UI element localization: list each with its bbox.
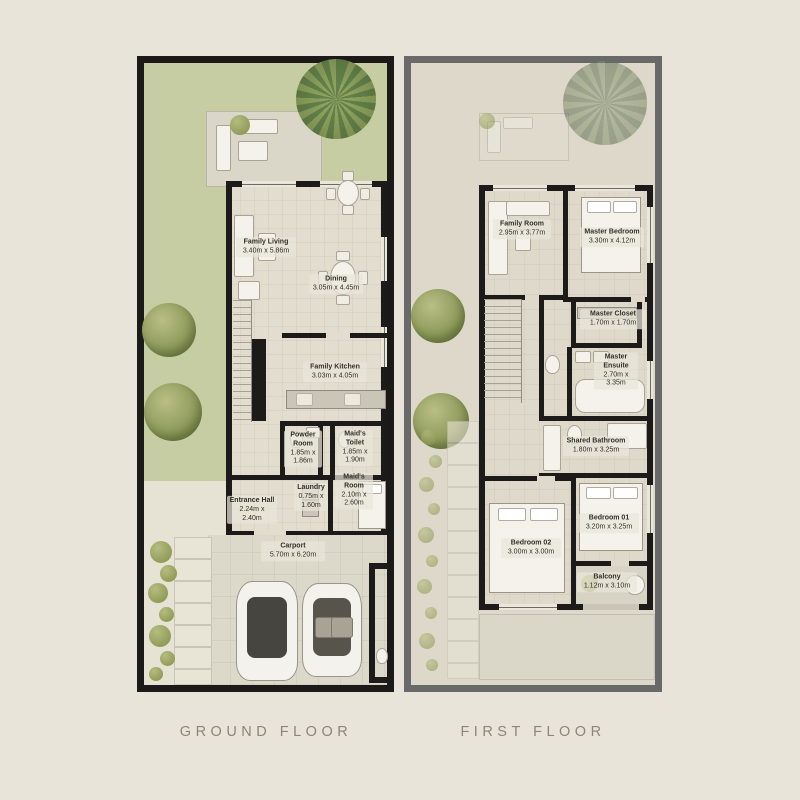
wall	[571, 302, 576, 347]
staircase	[233, 300, 252, 422]
room-dims: 3.00m x 3.00m	[503, 548, 559, 557]
room-dims: 3.20m x 3.25m	[581, 523, 637, 532]
room-name: Carport	[263, 542, 323, 551]
room-label-bedroom-01: Bedroom 01 3.20m x 3.25m	[579, 513, 639, 533]
shrub-icon	[429, 455, 442, 468]
car-seat	[331, 617, 353, 637]
first-floor-caption: FIRST FLOOR	[460, 724, 605, 740]
toilet-icon	[545, 355, 560, 374]
room-name: Master Closet	[582, 310, 644, 319]
shrub-icon	[150, 541, 172, 563]
wall	[330, 421, 335, 480]
shrub-icon	[159, 607, 174, 622]
room-name: Powder Room	[286, 432, 320, 450]
room-label-balcony: Balcony 1.12m x 3.10m	[577, 572, 637, 592]
shrub-icon	[417, 579, 432, 594]
room-label-shared-bathroom: Shared Bathroom 1.80m x 3.25m	[563, 436, 629, 456]
room-label-family-room: Family Room 2.95m x 3.77m	[493, 219, 551, 239]
shrub-icon	[428, 503, 440, 515]
shrub-icon	[425, 607, 437, 619]
wall	[232, 475, 282, 480]
sink-icon	[296, 393, 313, 406]
table-top	[337, 180, 359, 206]
chair-icon	[326, 188, 336, 200]
palm-tree-icon	[296, 59, 376, 139]
chair-icon	[360, 188, 370, 200]
wall	[252, 339, 266, 421]
wall	[539, 416, 653, 421]
window	[381, 237, 387, 281]
room-dims: 1.12m x 3.10m	[579, 582, 635, 591]
chair-icon	[336, 295, 350, 305]
faded-sofa-outline	[503, 117, 533, 129]
shrub-icon	[418, 527, 434, 543]
coffee-table-icon	[238, 141, 268, 161]
shrub-icon	[426, 659, 438, 671]
room-dims: 2.24m x 2.40m	[229, 506, 275, 524]
room-label-family-living: Family Living 3.40m x 5.86m	[236, 237, 296, 257]
room-dims: 2.95m x 3.77m	[495, 229, 549, 238]
room-label-bedroom-02: Bedroom 02 3.00m x 3.00m	[501, 538, 561, 558]
window	[242, 181, 296, 187]
room-dims: 1.85m x 1.90m	[339, 448, 371, 466]
room-name: Bedroom 01	[581, 514, 637, 523]
balcony-railing	[583, 604, 639, 610]
shrub-icon	[479, 113, 495, 129]
outdoor-dining-table-icon	[326, 171, 368, 213]
outdoor-sofa-icon	[216, 125, 231, 171]
pillow	[586, 487, 611, 499]
room-dims: 0.75m x 1.60m	[296, 493, 326, 511]
room-label-maids-room: Maid's Room 2.10m x 2.60m	[335, 473, 373, 510]
room-label-maids-toilet: Maid's Toilet 1.85m x 1.90m	[337, 430, 373, 467]
cooktop-icon	[344, 393, 361, 406]
window	[647, 361, 653, 399]
sofa-icon	[506, 201, 550, 216]
room-label-family-kitchen: Family Kitchen 3.03m x 4.05m	[303, 362, 367, 382]
room-label-laundry: Laundry 0.75m x 1.60m	[294, 483, 328, 511]
window	[575, 185, 635, 191]
window	[493, 185, 547, 191]
room-dims: 3.30m x 4.12m	[582, 237, 642, 246]
window	[647, 207, 653, 263]
shrub-icon	[149, 667, 163, 681]
room-dims: 1.80m x 3.25m	[565, 446, 627, 455]
room-dims: 1.85m x 1.86m	[286, 449, 320, 467]
wall	[567, 347, 572, 417]
room-name: Family Kitchen	[305, 363, 365, 372]
wall	[226, 181, 232, 537]
stepping-stones	[447, 421, 479, 679]
pillow	[613, 201, 637, 213]
door-opening	[537, 476, 555, 481]
shrub-icon	[160, 651, 175, 666]
room-label-entrance-hall: Entrance Hall 2.24m x 2.40m	[227, 496, 277, 524]
tree-icon	[411, 289, 465, 343]
room-dims: 5.70m x 6.20m	[263, 551, 323, 560]
shrub-icon	[421, 429, 437, 445]
pillow	[613, 487, 638, 499]
shrub-icon	[230, 115, 250, 135]
room-name: Maid's Toilet	[339, 431, 371, 449]
shrub-icon	[419, 477, 434, 492]
room-name: Family Room	[495, 220, 549, 229]
room-dims: 2.10m x 2.60m	[337, 491, 371, 509]
door-opening	[326, 333, 350, 338]
room-label-master-ensuite: Master Ensuite 2.70m x 3.35m	[594, 353, 638, 390]
carport-roof-outline	[479, 614, 655, 680]
pillow	[587, 201, 611, 213]
tree-icon	[142, 303, 196, 357]
car-roof	[247, 597, 287, 659]
room-dims: 1.70m x 1.70m	[582, 319, 644, 328]
room-name: Shared Bathroom	[565, 437, 627, 446]
stepping-stones	[174, 537, 212, 685]
shrub-icon	[149, 625, 171, 647]
wall	[539, 295, 544, 421]
room-name: Master Bedroom	[582, 228, 642, 237]
floorplan-sheet: Family Living 3.40m x 5.86m Dining 3.05m…	[0, 0, 800, 800]
shrub-icon	[419, 633, 435, 649]
toilet-icon	[376, 648, 388, 664]
room-name: Dining	[311, 275, 361, 284]
room-name: Maid's Room	[337, 474, 371, 492]
room-dims: 3.03m x 4.05m	[305, 372, 365, 381]
room-dims: 2.70m x 3.35m	[596, 371, 636, 389]
room-label-master-bedroom: Master Bedroom 3.30m x 4.12m	[580, 227, 644, 247]
room-label-dining: Dining 3.05m x 4.45m	[309, 274, 363, 294]
shrub-icon	[426, 555, 438, 567]
room-label-powder-room: Powder Room 1.85m x 1.86m	[284, 431, 322, 468]
pillow	[530, 508, 558, 521]
wall	[479, 476, 571, 481]
room-name: Master Ensuite	[596, 354, 636, 372]
room-name: Entrance Hall	[229, 497, 275, 506]
wall	[369, 563, 375, 683]
room-label-carport: Carport 5.70m x 6.20m	[261, 541, 325, 561]
wall	[563, 185, 568, 297]
room-name: Bedroom 02	[503, 539, 559, 548]
wall	[571, 343, 642, 348]
palm-tree-icon	[563, 61, 647, 145]
staircase	[484, 299, 522, 403]
room-name: Balcony	[579, 573, 635, 582]
armchair-icon	[238, 281, 260, 300]
window	[499, 604, 557, 610]
room-dims: 3.05m x 4.45m	[311, 284, 361, 293]
pillow	[498, 508, 526, 521]
chair-icon	[336, 251, 350, 261]
car-icon	[236, 581, 298, 681]
shrub-icon	[148, 583, 168, 603]
chair-icon	[342, 171, 354, 181]
ground-floor-caption: GROUND FLOOR	[180, 724, 352, 740]
bathroom-vanity	[543, 425, 561, 471]
wall	[328, 480, 333, 531]
wall	[369, 677, 387, 683]
sink-icon	[575, 351, 591, 363]
room-name: Family Living	[238, 238, 294, 247]
room-name: Laundry	[296, 484, 326, 493]
window	[647, 485, 653, 533]
chair-icon	[342, 205, 354, 215]
room-dims: 3.40m x 5.86m	[238, 247, 294, 256]
shrub-icon	[160, 565, 177, 582]
tree-icon	[144, 383, 202, 441]
room-label-master-closet: Master Closet 1.70m x 1.70m	[580, 309, 646, 329]
convertible-car-icon	[302, 583, 362, 677]
